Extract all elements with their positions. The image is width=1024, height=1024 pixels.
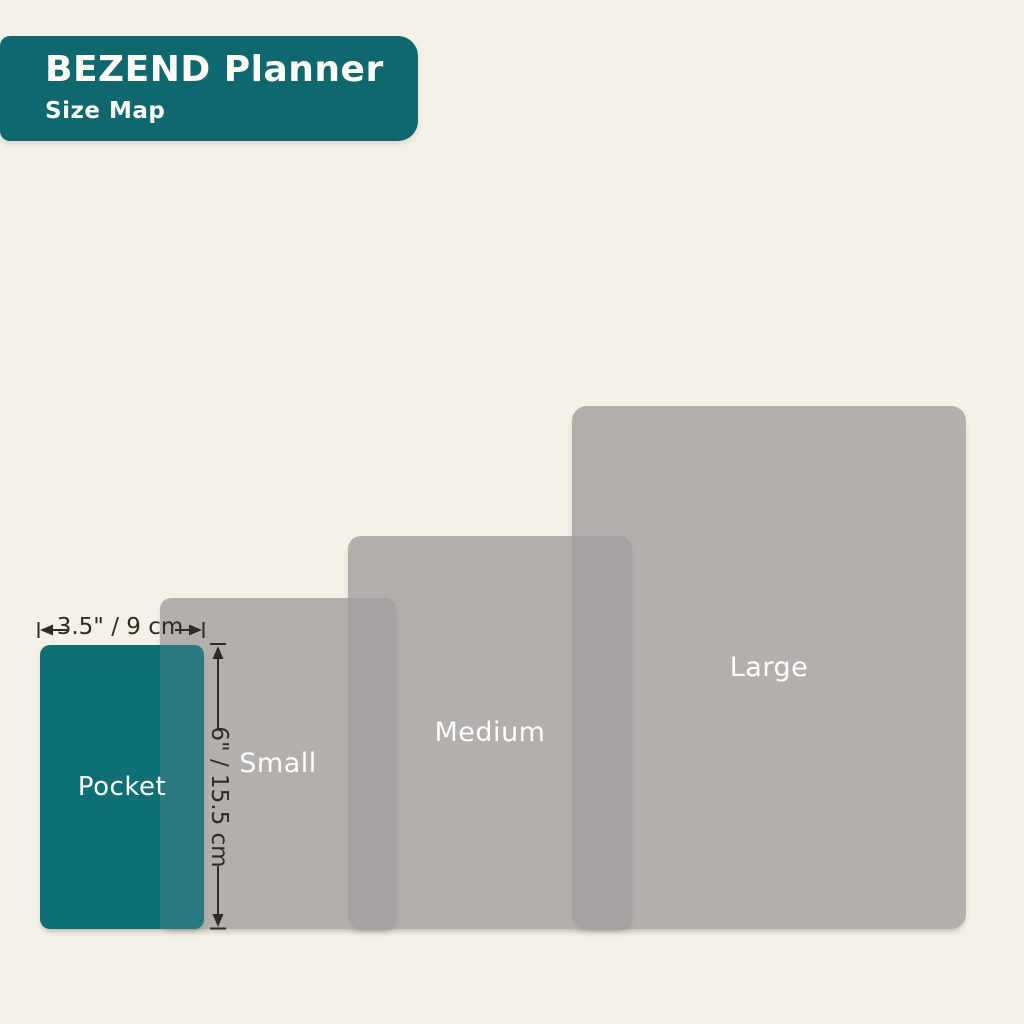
size-label-medium: Medium bbox=[435, 717, 546, 748]
size-label-large: Large bbox=[730, 652, 808, 683]
page-title: BEZEND Planner bbox=[45, 50, 418, 90]
size-rect-pocket: Pocket bbox=[40, 645, 204, 929]
size-map-canvas: BEZEND Planner Size Map Large Medium Sma… bbox=[0, 0, 1024, 1024]
page-subtitle: Size Map bbox=[45, 98, 418, 124]
pocket-small-overlap-strip bbox=[160, 645, 204, 929]
size-label-small: Small bbox=[239, 748, 317, 779]
size-label-pocket: Pocket bbox=[78, 772, 166, 802]
header-badge: BEZEND Planner Size Map bbox=[0, 36, 418, 141]
width-dim-left-arrowhead bbox=[40, 625, 53, 636]
